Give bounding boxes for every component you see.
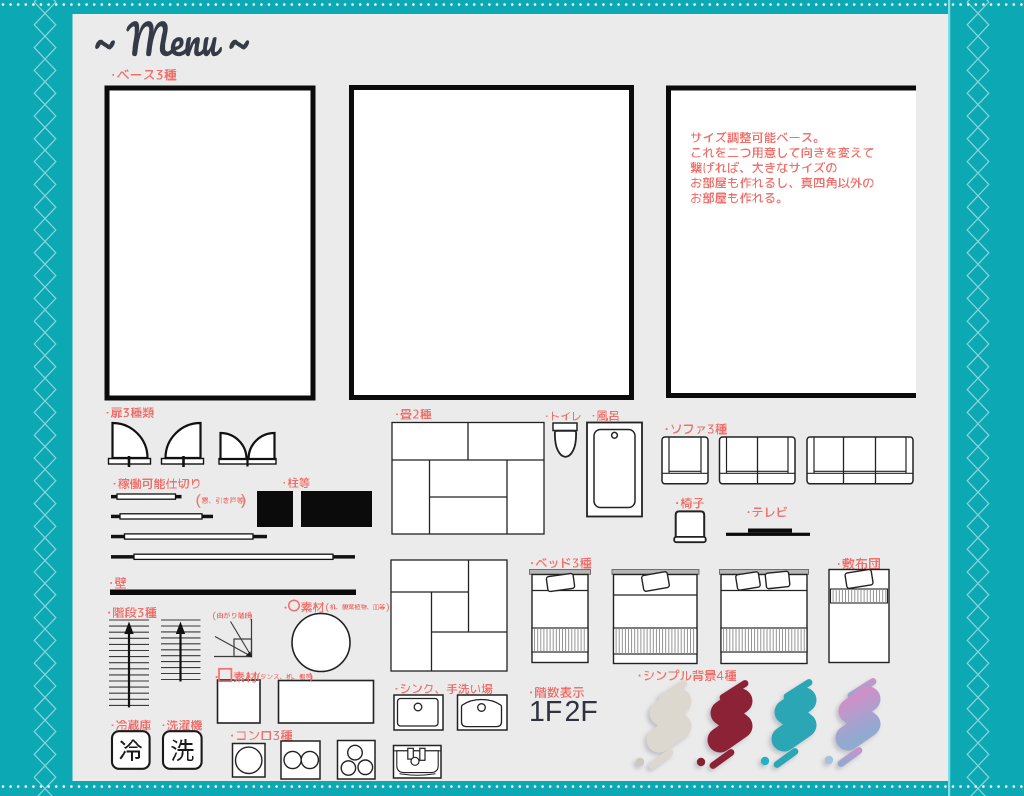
- svg-text:2F: 2F: [565, 696, 598, 728]
- svg-text:1F: 1F: [529, 696, 562, 728]
